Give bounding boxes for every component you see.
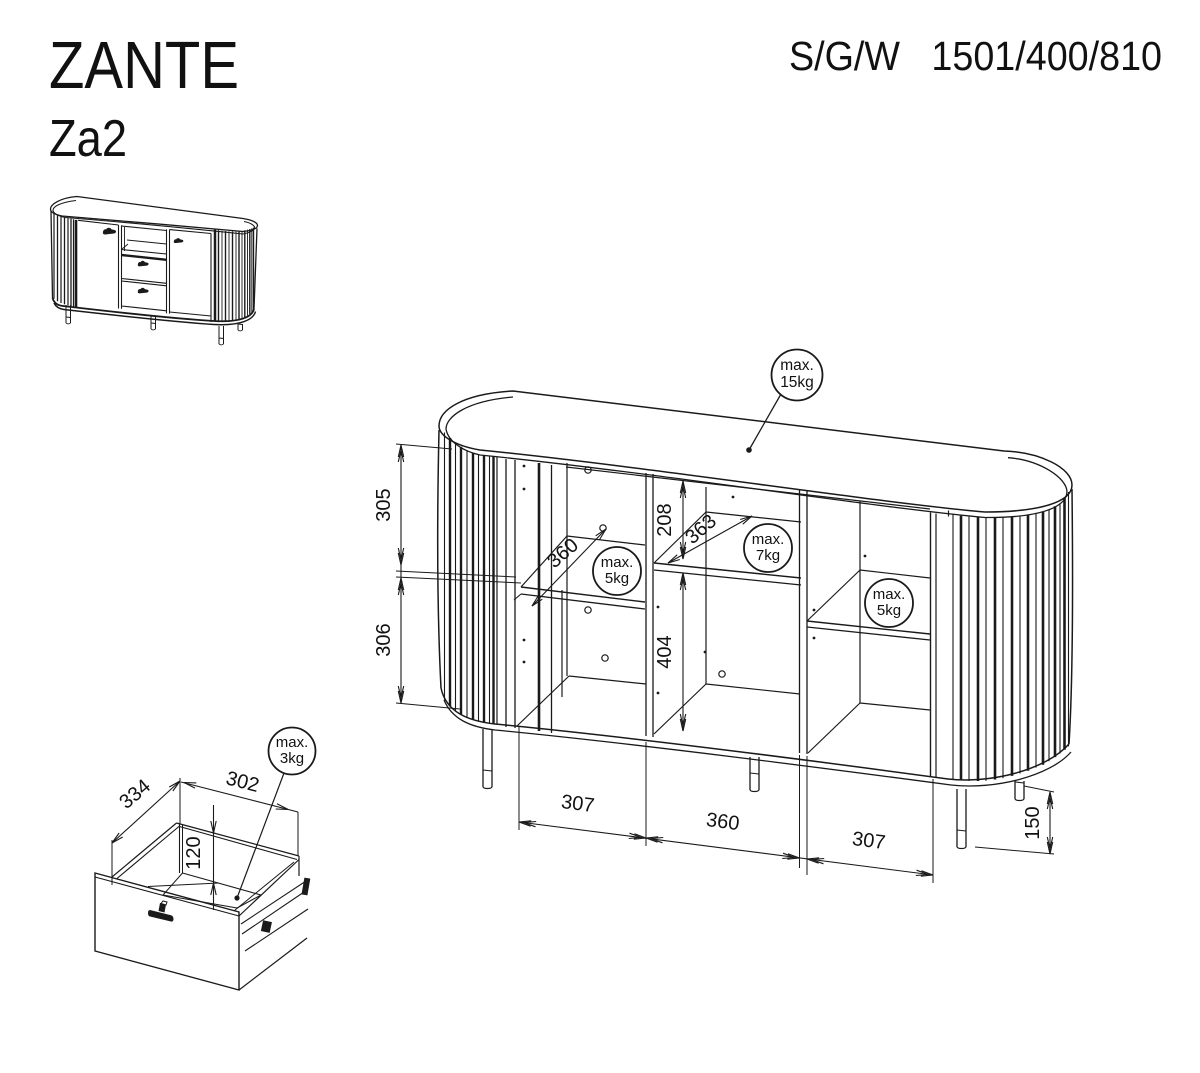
svg-text:3kg: 3kg [280,750,304,767]
svg-text:120: 120 [183,836,205,869]
svg-text:5kg: 5kg [605,570,629,587]
svg-text:15kg: 15kg [780,374,814,391]
svg-text:404: 404 [654,635,676,668]
svg-text:307: 307 [560,791,596,817]
svg-text:S/G/W 1501/400/810: S/G/W 1501/400/810 [789,33,1162,79]
svg-text:max.: max. [752,531,785,548]
svg-text:ZANTE: ZANTE [49,28,239,103]
svg-text:360: 360 [705,809,741,835]
svg-text:max.: max. [276,734,309,751]
svg-text:305: 305 [373,488,395,521]
svg-text:max.: max. [601,554,634,571]
svg-text:7kg: 7kg [756,547,780,564]
svg-text:max.: max. [780,357,814,374]
svg-text:307: 307 [851,828,887,854]
svg-text:Za2: Za2 [49,110,127,168]
svg-text:max.: max. [873,586,906,603]
svg-text:306: 306 [373,623,395,656]
svg-text:150: 150 [1022,806,1044,839]
svg-text:5kg: 5kg [877,602,901,619]
svg-text:208: 208 [654,503,676,536]
